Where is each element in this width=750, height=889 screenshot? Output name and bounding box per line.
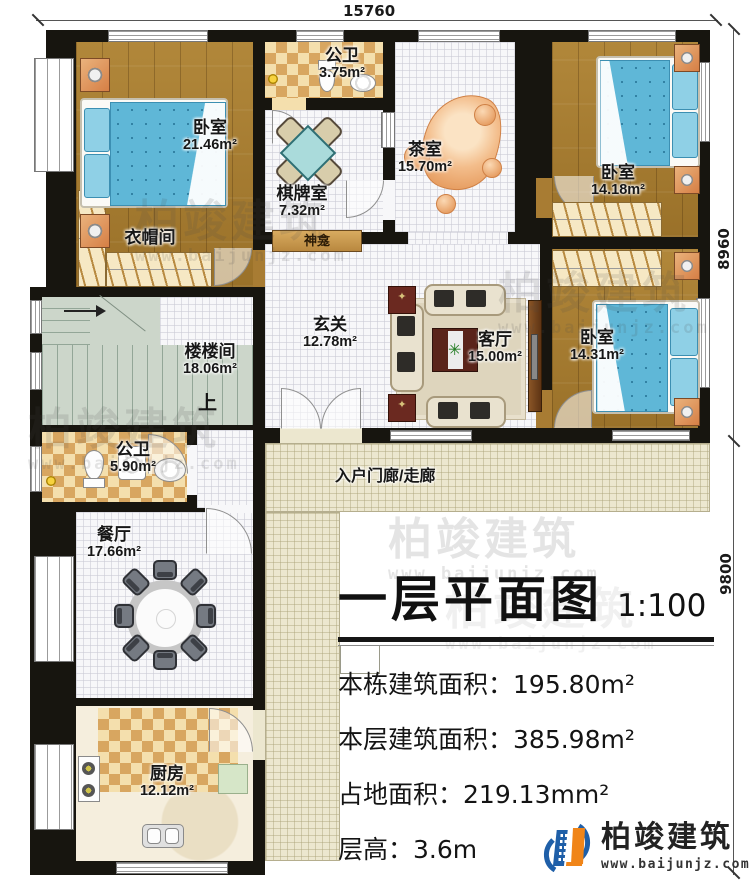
plan-scale: 1:100 xyxy=(617,588,706,624)
stat-label: 本栋建筑面积： xyxy=(338,671,513,699)
room-area: 18.06m² xyxy=(160,361,260,377)
side-table: ✦ xyxy=(388,394,416,422)
stat-value: 385.98m² xyxy=(513,725,635,754)
doorgap-games-tea xyxy=(383,180,395,220)
dining-chair xyxy=(153,560,177,580)
nightstand xyxy=(674,398,700,426)
window-living-porch xyxy=(390,430,472,441)
bed-bedroom2-mattress xyxy=(600,60,670,166)
room-area: 21.46m² xyxy=(160,137,260,153)
dimension-top-label: 15760 xyxy=(343,2,395,20)
kitchen-sink-basin xyxy=(147,828,161,844)
watermark: 柏竣建筑 www.baijunjz.com xyxy=(135,200,347,265)
label-bedroom1: 卧室 21.46m² xyxy=(160,118,260,153)
plan-title: 一层平面图 xyxy=(338,560,603,631)
star-icon: ✦ xyxy=(397,399,406,411)
stat-label: 层高： xyxy=(338,836,413,864)
watermark: 柏竣建筑 www.baijunjz.com xyxy=(498,272,710,337)
dining-chair xyxy=(196,604,216,628)
stat-value: 219.13mm² xyxy=(463,780,609,809)
dimension-right-lower-label: 9800 xyxy=(717,553,735,595)
room-name: 厨房 xyxy=(117,764,217,783)
bath-lamp-icon xyxy=(46,476,56,486)
window-kitchen-left xyxy=(34,744,74,830)
doorgap-bath-top xyxy=(272,98,306,110)
cutting-board-icon xyxy=(218,764,248,794)
doorgap-entry xyxy=(280,428,362,443)
sofa-cushion xyxy=(466,290,486,307)
stove-burner-icon xyxy=(82,762,95,775)
stair-landing xyxy=(160,297,253,345)
room-name: 餐厅 xyxy=(64,525,164,544)
sofa-cushion xyxy=(434,290,454,307)
star-icon: ✦ xyxy=(397,291,406,303)
stat-label: 占地面积： xyxy=(338,781,463,809)
room-name: 玄关 xyxy=(280,315,380,334)
stair-arrow-head-icon xyxy=(96,305,106,317)
dining-table-center xyxy=(156,609,176,629)
nightstand xyxy=(80,58,110,92)
room-area: 15.00m² xyxy=(445,349,545,365)
window-kitchen-bottom xyxy=(116,862,228,874)
tea-stone-ball xyxy=(482,158,502,178)
watermark-url: www.baijunjz.com xyxy=(498,320,710,337)
sofa-cushion xyxy=(470,402,490,419)
label-kitchen: 厨房 12.12m² xyxy=(117,764,217,799)
dining-chair xyxy=(153,650,177,670)
bath-lamp-icon xyxy=(268,74,278,84)
window-bedroom2-top xyxy=(588,30,676,42)
dimension-tick xyxy=(728,435,741,448)
room-name: 卧室 xyxy=(568,163,668,182)
title-divider xyxy=(338,637,714,642)
watermark-url: www.baijunjz.com xyxy=(28,456,240,473)
floor-tea-opening xyxy=(408,232,508,244)
floor-corridor xyxy=(265,512,340,861)
sofa-cushion xyxy=(438,402,458,419)
room-area: 3.75m² xyxy=(292,65,392,81)
stat-building-area: 本栋建筑面积：195.80m² xyxy=(338,665,714,701)
stat-value: 3.6m xyxy=(413,835,477,864)
floorplan-canvas: 15760 8960 9800 上 xyxy=(0,0,750,889)
stair-arrow-line xyxy=(64,310,96,312)
title-divider-thin xyxy=(338,645,714,646)
dimension-line-top xyxy=(36,20,718,21)
bed-bedroom1-pillow xyxy=(84,108,110,152)
nightstand xyxy=(674,166,700,194)
room-name: 卧室 xyxy=(160,118,260,137)
label-dining: 餐厅 17.66m² xyxy=(64,525,164,560)
window-bath-top xyxy=(296,30,344,42)
tea-stone-ball xyxy=(474,104,496,126)
window-dining-left xyxy=(34,556,74,662)
label-stairs: 楼楼间 18.06m² xyxy=(160,342,260,377)
label-porch: 入户门廊/走廊 xyxy=(335,468,535,486)
stove-burner-icon xyxy=(82,784,95,797)
bed-bedroom2-pillow xyxy=(672,112,698,158)
doorgap-bedroom2 xyxy=(536,178,552,218)
stair-flight-left xyxy=(42,297,90,345)
watermark: 柏竣建筑 www.baijunjz.com xyxy=(28,408,240,473)
brand-url: www.baijunjz.com xyxy=(601,857,750,872)
kitchen-sink-basin xyxy=(165,828,179,844)
sofa-cushion xyxy=(397,352,415,372)
stat-land-area: 占地面积：219.13mm² xyxy=(338,775,714,811)
side-table: ✦ xyxy=(388,286,416,314)
dimension-right-upper-label: 8960 xyxy=(715,228,733,270)
dimension-line-right xyxy=(733,30,734,875)
nightstand xyxy=(674,44,700,72)
room-name: 楼楼间 xyxy=(160,342,260,361)
label-hall: 玄关 12.78m² xyxy=(280,315,380,350)
bed-bedroom1-pillow xyxy=(84,154,110,198)
room-name: 入户门廊/走廊 xyxy=(335,468,535,486)
window-bedroom1-top xyxy=(108,30,208,42)
room-area: 14.31m² xyxy=(547,347,647,363)
room-area: 15.70m² xyxy=(375,159,475,175)
room-area: 12.12m² xyxy=(117,783,217,799)
watermark-text: 柏竣建筑 xyxy=(498,272,710,316)
dining-chair xyxy=(114,604,134,628)
label-bath-top: 公卫 3.75m² xyxy=(292,46,392,81)
watermark-text: 柏竣建筑 xyxy=(135,200,347,244)
stat-floor-area: 本层建筑面积：385.98m² xyxy=(338,720,714,756)
closet-bedroom2 xyxy=(552,202,662,237)
window-stairs-left1 xyxy=(30,300,42,334)
label-bedroom2: 卧室 14.18m² xyxy=(568,163,668,198)
dimension-tick xyxy=(728,23,741,36)
stat-value: 195.80m² xyxy=(513,670,635,699)
room-name: 公卫 xyxy=(292,46,392,65)
watermark-url: www.baijunjz.com xyxy=(135,248,347,265)
doorgap-kitchen xyxy=(253,710,265,760)
room-area: 12.78m² xyxy=(280,334,380,350)
window-bedroom3-porch xyxy=(612,430,690,441)
window-stairs-left2 xyxy=(30,352,42,390)
brand-logo: 柏竣建筑 www.baijunjz.com xyxy=(541,818,750,876)
label-tea: 茶室 15.70m² xyxy=(375,140,475,175)
room-area: 17.66m² xyxy=(64,544,164,560)
brand-name: 柏竣建筑 xyxy=(601,823,750,853)
stat-label: 本层建筑面积： xyxy=(338,726,513,754)
sofa-cushion xyxy=(397,316,415,336)
watermark-text: 柏竣建筑 xyxy=(28,408,240,452)
toilet-tank-icon xyxy=(83,478,105,488)
window-tea-top xyxy=(418,30,500,42)
tea-stone-ball xyxy=(436,194,456,214)
window-bedroom1-left xyxy=(34,58,74,172)
room-name: 茶室 xyxy=(375,140,475,159)
watermark-text: 柏竣建筑 xyxy=(388,518,600,562)
brand-building-icon xyxy=(541,818,593,876)
room-area: 14.18m² xyxy=(568,182,668,198)
